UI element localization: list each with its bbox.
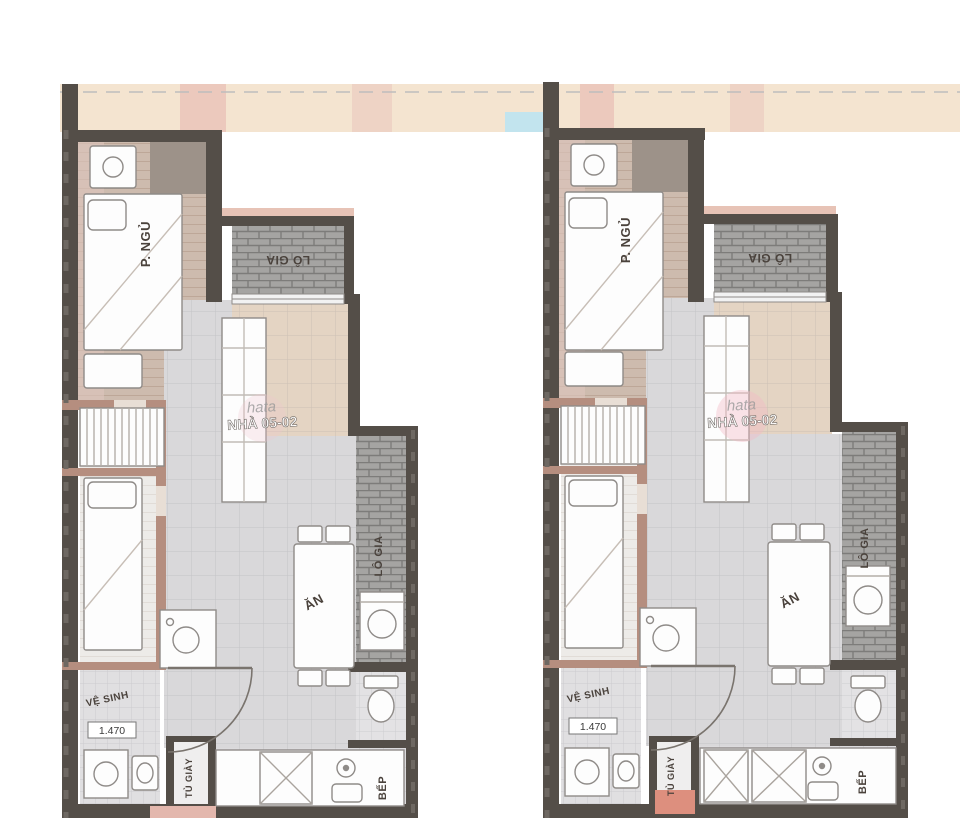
- loggia-top-label: LÔ GIA: [266, 253, 310, 268]
- bath-washer-drum: [94, 762, 118, 786]
- floorplan-canvas: 1.470 P. NGỦ LÔ GIA LÔ GIA ĂN VỆ SINH TỦ…: [0, 0, 960, 839]
- bath-washer-drum: [575, 760, 599, 784]
- dining-table-icon: [768, 542, 830, 666]
- lamp-icon: [584, 155, 604, 175]
- wall-loggia-right: [826, 214, 838, 302]
- wall-bottom: [543, 804, 908, 818]
- kitchen-sink-icon: [332, 784, 362, 802]
- top-corridor-band: [60, 84, 960, 132]
- bath-sink-bowl: [618, 761, 634, 781]
- corridor-patch: [730, 84, 764, 132]
- wall-wc-bottom: [830, 738, 908, 746]
- right-plan: 1.470 P. NGỦ LÔ GIA LÔ GIA ĂN VỆ SINH TỦ…: [543, 82, 908, 818]
- wall-wc-bottom: [348, 740, 418, 748]
- wall-loggia-right: [344, 216, 354, 304]
- kitchen-sink-icon: [808, 782, 838, 800]
- washer-drum: [854, 586, 882, 614]
- chair-icon: [298, 526, 322, 542]
- chair-icon: [772, 524, 796, 540]
- wall-shoe-left: [166, 736, 174, 808]
- toilet-icon: [368, 690, 394, 722]
- wall-stub-top: [543, 82, 559, 128]
- bed-bench: [565, 352, 623, 386]
- sink-basin-icon: [173, 627, 199, 653]
- wall-loggia-top: [688, 214, 838, 224]
- shoe-cabinet-label: TỦ GIÀY: [665, 756, 676, 796]
- corridor-patch: [352, 84, 392, 132]
- pillow2-icon: [88, 482, 136, 508]
- shoe-cabinet-label: TỦ GIÀY: [183, 758, 194, 798]
- chair-icon: [326, 670, 350, 686]
- lamp-icon: [103, 157, 123, 177]
- loggia-top-label: LÔ GIA: [748, 251, 792, 266]
- wall-bath-top: [543, 660, 647, 668]
- wall-loggia-top: [206, 216, 354, 226]
- floorplan-drawing: 1.470 P. NGỦ LÔ GIA LÔ GIA ĂN VỆ SINH TỦ…: [0, 0, 960, 839]
- pillow-icon: [88, 200, 126, 230]
- chair-icon: [800, 524, 824, 540]
- stove-knob: [344, 766, 349, 771]
- dimension-text: 1.470: [99, 725, 125, 737]
- right-dimension: 1.470: [569, 718, 617, 734]
- kitchen-label: BẾP: [856, 770, 869, 794]
- stove-knob: [820, 764, 825, 769]
- wall-bed2-top: [543, 466, 647, 474]
- chair-icon: [298, 670, 322, 686]
- bath-sink-bowl: [137, 763, 153, 783]
- wall-bed2-top: [62, 468, 166, 476]
- wall-bath-top: [62, 662, 166, 670]
- wall-shoe-right: [208, 736, 216, 808]
- corridor-patch: [180, 84, 226, 132]
- chair-icon: [326, 526, 350, 542]
- dining-table-icon: [294, 544, 354, 668]
- faucet-icon: [647, 617, 654, 624]
- door-gap-bed2: [637, 484, 647, 514]
- right-window: [714, 292, 826, 302]
- toilet-tank: [851, 676, 885, 688]
- left-dimension: 1.470: [88, 722, 136, 738]
- washer-drum: [368, 610, 396, 638]
- corridor-patch: [580, 84, 614, 132]
- bedroom1-niche: [632, 140, 688, 192]
- bed-bench: [84, 354, 142, 388]
- pillow2-icon: [569, 480, 617, 506]
- wall-right-upper: [830, 292, 842, 430]
- faucet-icon: [167, 619, 174, 626]
- bedroom-label: P. NGỦ: [618, 217, 633, 263]
- loggia-side-label: LÔ GIA: [858, 528, 871, 569]
- wall-right-upper: [348, 294, 360, 436]
- loggia-side-label: LÔ GIA: [372, 536, 385, 577]
- toilet-tank: [364, 676, 398, 688]
- kitchen-label: BẾP: [376, 776, 389, 800]
- pink-threshold: [150, 806, 216, 818]
- bedroom-label: P. NGỦ: [138, 221, 153, 267]
- left-plan: 1.470 P. NGỦ LÔ GIA LÔ GIA ĂN VỆ SINH TỦ…: [62, 84, 418, 818]
- sink-basin-icon: [653, 625, 679, 651]
- toilet-icon: [855, 690, 881, 722]
- door-gap-bed2: [156, 486, 166, 516]
- pillow-icon: [569, 198, 607, 228]
- bedroom1-niche: [150, 142, 206, 194]
- left-window: [232, 294, 344, 304]
- dimension-text: 1.470: [580, 721, 606, 733]
- wall-stub-top: [62, 84, 78, 130]
- wall-top: [543, 128, 705, 140]
- chair-icon: [800, 668, 824, 684]
- chair-icon: [772, 668, 796, 684]
- wall-top: [62, 130, 222, 142]
